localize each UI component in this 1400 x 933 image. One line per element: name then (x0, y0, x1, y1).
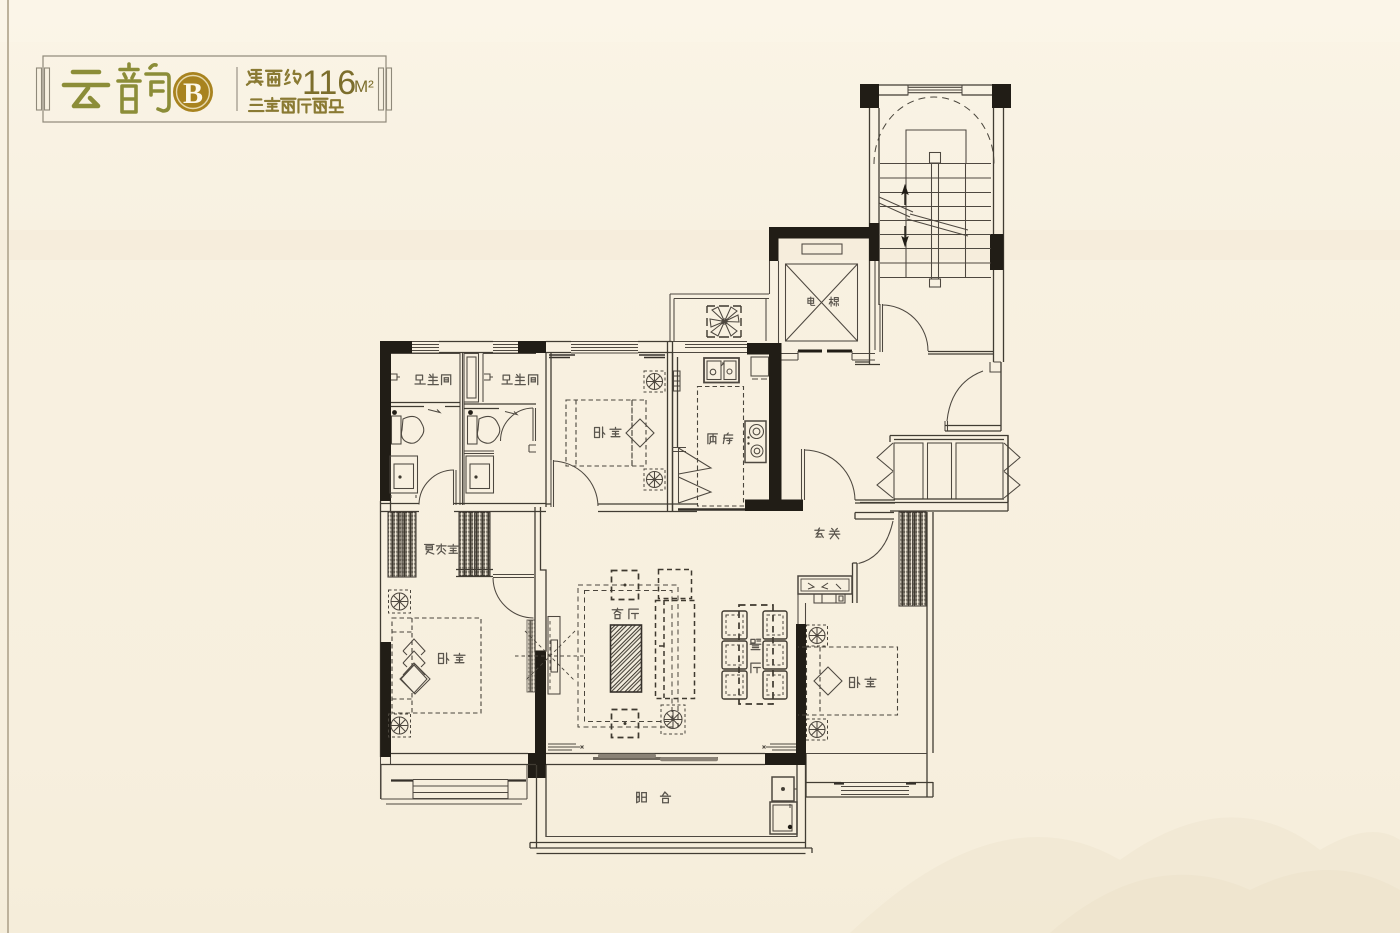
svg-text:M²: M² (354, 77, 374, 96)
svg-text:B: B (183, 77, 203, 110)
svg-text:116: 116 (302, 64, 356, 102)
